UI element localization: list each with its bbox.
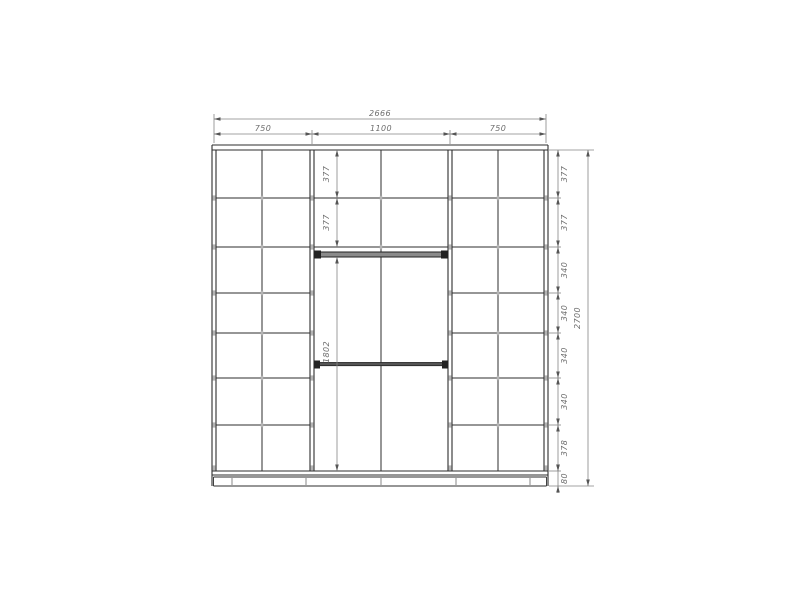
- dim-arrow: [312, 132, 319, 136]
- joint-mark: [213, 195, 216, 200]
- dim-arrow: [586, 480, 590, 487]
- joint-mark: [311, 195, 314, 200]
- dimension-label: 377: [322, 165, 331, 182]
- joint-mark: [261, 291, 263, 295]
- joint-mark: [449, 375, 452, 380]
- dim-arrow: [214, 132, 221, 136]
- joint-mark: [497, 291, 499, 295]
- dim-arrow: [586, 150, 590, 157]
- joint-mark: [311, 375, 314, 380]
- dim-arrow: [335, 150, 339, 157]
- joint-mark: [213, 244, 216, 249]
- joint-mark: [449, 290, 452, 295]
- dimension-label: 80: [560, 473, 569, 484]
- joint-mark: [311, 244, 314, 249]
- dim-arrow: [335, 241, 339, 248]
- dim-arrow: [556, 198, 560, 205]
- joint-mark: [261, 331, 263, 335]
- joint-mark: [213, 375, 216, 380]
- joint-mark: [497, 376, 499, 380]
- dimension-label: 750: [490, 124, 506, 133]
- dim-arrow: [556, 378, 560, 385]
- middle-thick-shelf: [316, 252, 446, 257]
- shelf-end-block: [314, 251, 321, 259]
- dim-arrow: [540, 132, 547, 136]
- dim-arrow: [556, 465, 560, 472]
- dim-arrow: [335, 257, 339, 264]
- rail-bracket: [314, 361, 320, 369]
- dim-arrow: [335, 198, 339, 205]
- joint-mark: [497, 245, 499, 249]
- joint-mark: [449, 195, 452, 200]
- joint-mark: [545, 422, 548, 427]
- dimension-label: 340: [560, 347, 569, 363]
- joint-mark: [545, 330, 548, 335]
- joint-mark: [545, 375, 548, 380]
- joint-mark: [213, 330, 216, 335]
- joint-mark: [497, 196, 499, 200]
- joint-mark: [545, 465, 548, 470]
- dimension-label: 2666: [369, 109, 391, 118]
- dim-arrow: [335, 465, 339, 472]
- joint-mark: [380, 245, 382, 249]
- joint-mark: [261, 376, 263, 380]
- joint-mark: [261, 423, 263, 427]
- dimension-label: 377: [560, 214, 569, 231]
- dim-arrow: [214, 117, 221, 121]
- rail-bracket: [442, 361, 448, 369]
- dim-arrow: [556, 287, 560, 294]
- joint-mark: [545, 195, 548, 200]
- joint-mark: [497, 331, 499, 335]
- wardrobe-technical-drawing: 2666750110075037737734034034034037880270…: [0, 0, 800, 600]
- joint-mark: [449, 244, 452, 249]
- dim-arrow: [556, 247, 560, 254]
- dim-arrow: [556, 241, 560, 248]
- dim-arrow: [444, 132, 451, 136]
- joint-mark: [213, 290, 216, 295]
- joint-mark: [380, 196, 382, 200]
- dim-arrow: [556, 486, 560, 493]
- dim-arrow: [556, 333, 560, 340]
- dimension-label: 378: [560, 440, 569, 456]
- dim-arrow: [556, 419, 560, 426]
- dim-arrow: [556, 192, 560, 199]
- dim-arrow: [540, 117, 547, 121]
- joint-mark: [311, 290, 314, 295]
- dim-arrow: [335, 192, 339, 199]
- dimension-label: 340: [560, 305, 569, 321]
- joint-mark: [545, 290, 548, 295]
- dim-arrow: [556, 327, 560, 334]
- dimension-annotations: 2666750110075037737734034034034037880270…: [214, 109, 594, 493]
- dimension-label: 377: [322, 214, 331, 231]
- dimension-label: 377: [560, 165, 569, 182]
- joint-mark: [449, 465, 452, 470]
- joint-mark: [449, 330, 452, 335]
- dimension-label: 1802: [322, 341, 331, 363]
- shelf-end-block: [441, 251, 448, 259]
- dimension-label: 340: [560, 262, 569, 278]
- joint-mark: [213, 465, 216, 470]
- dim-arrow: [450, 132, 457, 136]
- dimension-label: 750: [255, 124, 271, 133]
- dimension-label: 340: [560, 393, 569, 409]
- dimension-label: 1100: [370, 124, 392, 133]
- plinth: [214, 477, 547, 486]
- dimension-label: 2700: [573, 307, 582, 329]
- dim-arrow: [556, 150, 560, 157]
- dim-arrow: [556, 425, 560, 432]
- joint-mark: [311, 422, 314, 427]
- joint-mark: [545, 244, 548, 249]
- drawing-page: 2666750110075037737734034034034037880270…: [0, 0, 800, 600]
- joint-mark: [497, 423, 499, 427]
- joint-mark: [311, 330, 314, 335]
- joint-mark: [311, 465, 314, 470]
- joint-marks: [213, 195, 548, 470]
- joint-mark: [449, 422, 452, 427]
- joint-mark: [213, 422, 216, 427]
- joint-mark: [261, 245, 263, 249]
- dim-arrow: [556, 293, 560, 300]
- dim-arrow: [556, 372, 560, 379]
- dim-arrow: [306, 132, 313, 136]
- joint-mark: [261, 196, 263, 200]
